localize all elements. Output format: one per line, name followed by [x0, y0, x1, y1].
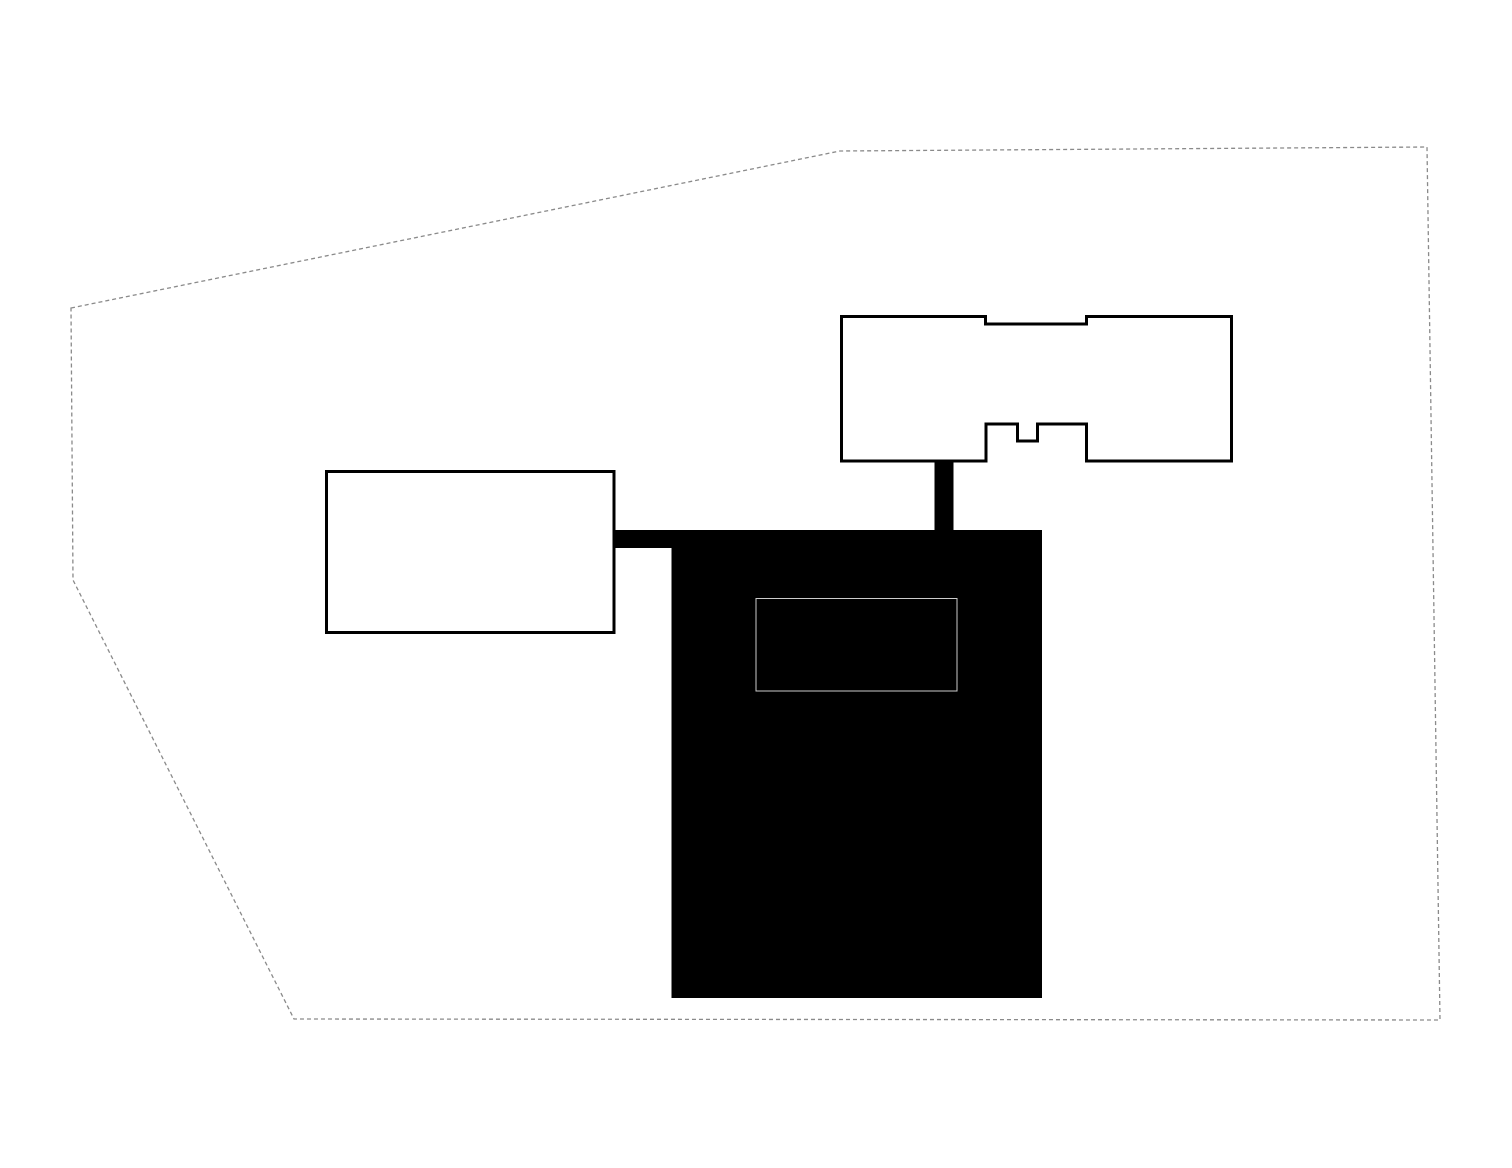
site-plan-svg [0, 0, 1512, 1168]
north-building-footprint [842, 317, 1232, 462]
west-connector-bar [612, 530, 673, 548]
main-building-mass [672, 530, 1043, 998]
west-building-footprint [327, 472, 615, 633]
site-plan-canvas [0, 0, 1512, 1168]
north-connector-bar [935, 460, 954, 531]
